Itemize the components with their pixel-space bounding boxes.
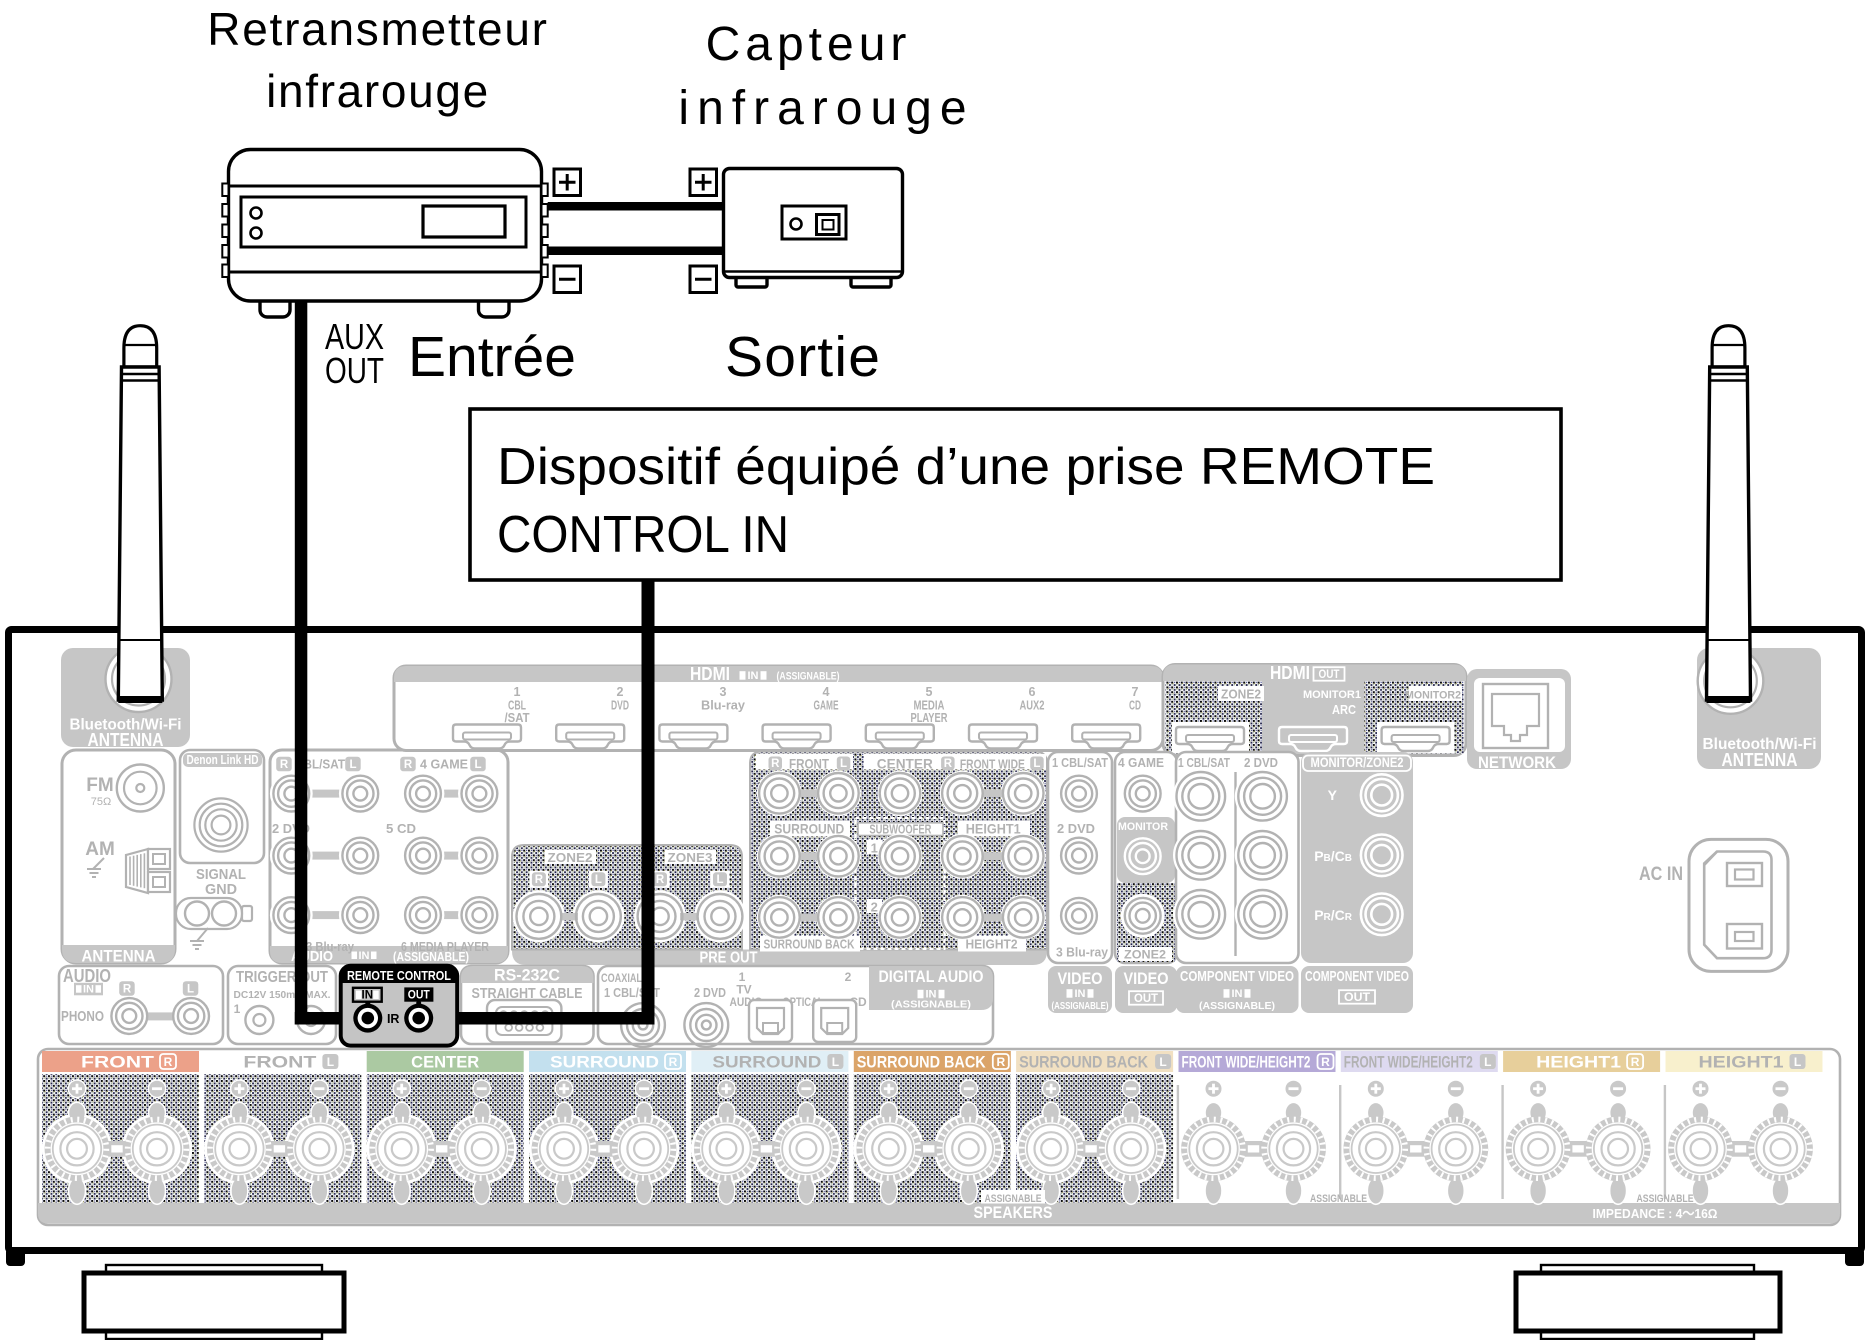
svg-text:MONITOR1: MONITOR1 xyxy=(1303,689,1361,701)
svg-text:FRONT WIDE: FRONT WIDE xyxy=(960,756,1025,771)
svg-text:MONITOR: MONITOR xyxy=(1118,821,1168,833)
svg-text:6: 6 xyxy=(1029,685,1036,699)
svg-text:PRE OUT: PRE OUT xyxy=(700,950,758,967)
svg-text:REMOTE CONTROL: REMOTE CONTROL xyxy=(347,968,451,983)
svg-text:5 CD: 5 CD xyxy=(386,821,416,836)
svg-text:L: L xyxy=(1033,758,1040,770)
svg-text:COMPONENT VIDEO: COMPONENT VIDEO xyxy=(1305,968,1409,985)
svg-text:ZONE2: ZONE2 xyxy=(548,850,593,865)
svg-text:HEIGHT1: HEIGHT1 xyxy=(966,821,1021,837)
svg-text:R: R xyxy=(944,758,953,770)
svg-text:L: L xyxy=(716,874,723,886)
svg-text:OUT: OUT xyxy=(1134,993,1158,1005)
svg-text:IN: IN xyxy=(1075,988,1086,1000)
svg-text:1: 1 xyxy=(234,1002,241,1016)
svg-text:DVD: DVD xyxy=(611,699,629,713)
svg-text:Sortie: Sortie xyxy=(725,325,881,389)
svg-text:OUT: OUT xyxy=(1344,992,1370,1004)
svg-text:Y: Y xyxy=(1328,787,1338,803)
svg-text:ASSIGNABLE: ASSIGNABLE xyxy=(985,1193,1042,1205)
svg-text:R: R xyxy=(280,759,289,771)
svg-text:L: L xyxy=(327,1055,334,1069)
svg-text:ANTENNA: ANTENNA xyxy=(82,947,156,966)
svg-text:GND: GND xyxy=(205,881,237,898)
svg-text:3 Blu-ray: 3 Blu-ray xyxy=(306,939,355,954)
svg-text:1 CBL/SAT: 1 CBL/SAT xyxy=(1052,755,1108,770)
svg-text:ARC: ARC xyxy=(1332,702,1357,717)
svg-text:Retransmetteur: Retransmetteur xyxy=(207,3,549,55)
svg-text:2: 2 xyxy=(871,899,878,914)
svg-text:DC12V 150mA MAX.: DC12V 150mA MAX. xyxy=(234,989,331,1001)
svg-text:4 GAME: 4 GAME xyxy=(420,757,468,772)
svg-text:2: 2 xyxy=(617,685,624,699)
svg-text:CONTROL IN: CONTROL IN xyxy=(497,506,789,564)
svg-text:Capteur: Capteur xyxy=(706,18,912,71)
svg-text:(ASSIGNABLE): (ASSIGNABLE) xyxy=(1052,1000,1109,1012)
svg-text:HDMI: HDMI xyxy=(1270,663,1310,683)
svg-text:infrarouge: infrarouge xyxy=(266,65,490,117)
svg-text:SURROUND: SURROUND xyxy=(774,821,844,837)
svg-text:infrarouge: infrarouge xyxy=(678,82,974,135)
svg-text:OUT: OUT xyxy=(1319,669,1340,681)
svg-text:SURROUND: SURROUND xyxy=(550,1054,659,1072)
svg-text:PLAYER: PLAYER xyxy=(911,711,948,725)
svg-text:HEIGHT2: HEIGHT2 xyxy=(966,937,1018,952)
svg-text:L: L xyxy=(474,759,481,771)
svg-text:ANTENNA: ANTENNA xyxy=(88,730,164,750)
svg-text:HDMI: HDMI xyxy=(690,664,730,684)
svg-text:ZONE3: ZONE3 xyxy=(668,850,713,865)
svg-text:SURROUND BACK: SURROUND BACK xyxy=(857,1054,986,1072)
svg-text:VIDEO: VIDEO xyxy=(1124,969,1169,988)
svg-text:IN: IN xyxy=(83,984,94,996)
svg-text:1: 1 xyxy=(871,840,878,855)
svg-text:L: L xyxy=(349,759,356,771)
svg-text:R: R xyxy=(404,759,413,771)
svg-text:Denon Link HD: Denon Link HD xyxy=(187,753,259,767)
svg-text:75Ω: 75Ω xyxy=(91,796,111,808)
svg-text:R: R xyxy=(771,758,780,770)
svg-text:R: R xyxy=(1631,1055,1640,1069)
svg-text:Blu-ray: Blu-ray xyxy=(701,699,745,713)
svg-text:IR: IR xyxy=(387,1012,400,1026)
svg-text:PHONO: PHONO xyxy=(61,1009,104,1025)
svg-text:R: R xyxy=(996,1055,1005,1069)
svg-text:Dispositif équipé d’une prise: Dispositif équipé d’une prise REMOTE xyxy=(497,438,1435,496)
svg-text:FM: FM xyxy=(86,775,113,796)
svg-text:3: 3 xyxy=(720,685,727,699)
svg-text:1 CBL/SAT: 1 CBL/SAT xyxy=(1178,755,1230,770)
svg-text:HEIGHT1: HEIGHT1 xyxy=(1536,1054,1621,1072)
svg-text:AC IN: AC IN xyxy=(1639,864,1683,885)
svg-text:RS-232C: RS-232C xyxy=(494,966,560,985)
svg-text:4 GAME: 4 GAME xyxy=(1118,755,1164,770)
svg-text:CENTER: CENTER xyxy=(411,1054,479,1072)
svg-text:SURROUND BACK: SURROUND BACK xyxy=(1019,1054,1148,1072)
svg-text:2 DVD: 2 DVD xyxy=(1057,821,1095,836)
svg-text:COMPONENT VIDEO: COMPONENT VIDEO xyxy=(1180,968,1294,985)
svg-text:R: R xyxy=(535,874,544,886)
svg-text:IN: IN xyxy=(748,670,759,682)
svg-text:FRONT WIDE/HEIGHT2: FRONT WIDE/HEIGHT2 xyxy=(1182,1054,1311,1072)
svg-text:FRONT: FRONT xyxy=(243,1054,316,1072)
svg-text:CENTER: CENTER xyxy=(877,755,933,771)
svg-text:(ASSIGNABLE): (ASSIGNABLE) xyxy=(1199,1000,1275,1012)
svg-text:L: L xyxy=(840,758,847,770)
svg-text:4: 4 xyxy=(823,685,830,699)
svg-text:6 MEDIA PLAYER: 6 MEDIA PLAYER xyxy=(401,939,489,954)
svg-text:R: R xyxy=(669,1055,678,1069)
svg-text:2 DVD: 2 DVD xyxy=(694,986,726,1000)
svg-text:L: L xyxy=(832,1055,839,1069)
svg-text:7: 7 xyxy=(1132,685,1139,699)
svg-text:NETWORK: NETWORK xyxy=(1478,754,1556,772)
svg-text:AM: AM xyxy=(85,839,115,860)
svg-text:GAME: GAME xyxy=(814,699,839,713)
svg-text:DIGITAL AUDIO: DIGITAL AUDIO xyxy=(879,968,984,986)
svg-text:SPEAKERS: SPEAKERS xyxy=(974,1203,1053,1222)
svg-text:L: L xyxy=(187,984,194,996)
svg-text:R: R xyxy=(123,984,132,996)
svg-text:FRONT: FRONT xyxy=(81,1054,154,1072)
svg-text:FRONT WIDE/HEIGHT2: FRONT WIDE/HEIGHT2 xyxy=(1344,1054,1473,1072)
svg-text:SURROUND: SURROUND xyxy=(712,1054,821,1072)
svg-text:IN: IN xyxy=(1232,988,1243,1000)
svg-text:MONITOR2: MONITOR2 xyxy=(1405,690,1461,702)
svg-text:OUT: OUT xyxy=(408,989,430,1001)
svg-text:HEIGHT1: HEIGHT1 xyxy=(1699,1054,1784,1072)
svg-text:IN: IN xyxy=(359,950,370,962)
svg-text:(ASSIGNABLE): (ASSIGNABLE) xyxy=(891,999,971,1011)
svg-text:IN: IN xyxy=(362,990,374,1002)
svg-text:L: L xyxy=(1794,1055,1801,1069)
svg-text:3 Blu-ray: 3 Blu-ray xyxy=(1056,945,1109,960)
svg-text:R: R xyxy=(656,874,665,886)
svg-text:L: L xyxy=(1484,1055,1491,1069)
svg-text:2 DVD: 2 DVD xyxy=(1244,755,1278,770)
svg-text:2: 2 xyxy=(845,970,852,984)
svg-text:/SAT: /SAT xyxy=(505,711,530,725)
svg-text:1: 1 xyxy=(514,685,521,699)
svg-text:CD: CD xyxy=(1129,699,1141,713)
svg-text:5: 5 xyxy=(926,685,933,699)
svg-text:IMPEDANCE : 4〜16Ω: IMPEDANCE : 4〜16Ω xyxy=(1593,1206,1718,1221)
svg-text:COAXIAL: COAXIAL xyxy=(601,971,642,985)
svg-text:ZONE2: ZONE2 xyxy=(1221,688,1261,702)
svg-text:L: L xyxy=(595,874,602,886)
svg-text:R: R xyxy=(1321,1055,1330,1069)
svg-text:(ASSIGNABLE): (ASSIGNABLE) xyxy=(777,671,840,683)
svg-text:TRIGGER OUT: TRIGGER OUT xyxy=(236,969,328,986)
svg-text:ASSIGNABLE: ASSIGNABLE xyxy=(1637,1193,1694,1205)
svg-text:OUT: OUT xyxy=(325,350,384,391)
svg-text:Entrée: Entrée xyxy=(408,325,576,389)
svg-text:R: R xyxy=(164,1055,173,1069)
svg-text:MONITOR/ZONE2: MONITOR/ZONE2 xyxy=(1311,755,1404,770)
svg-text:VIDEO: VIDEO xyxy=(1058,969,1103,988)
svg-text:L: L xyxy=(1159,1055,1166,1069)
svg-text:ZONE2: ZONE2 xyxy=(1124,948,1166,962)
svg-text:AUX2: AUX2 xyxy=(1020,699,1045,713)
svg-text:FRONT: FRONT xyxy=(789,755,829,771)
svg-text:ASSIGNABLE: ASSIGNABLE xyxy=(1310,1193,1367,1205)
svg-text:ANTENNA: ANTENNA xyxy=(1722,750,1798,770)
